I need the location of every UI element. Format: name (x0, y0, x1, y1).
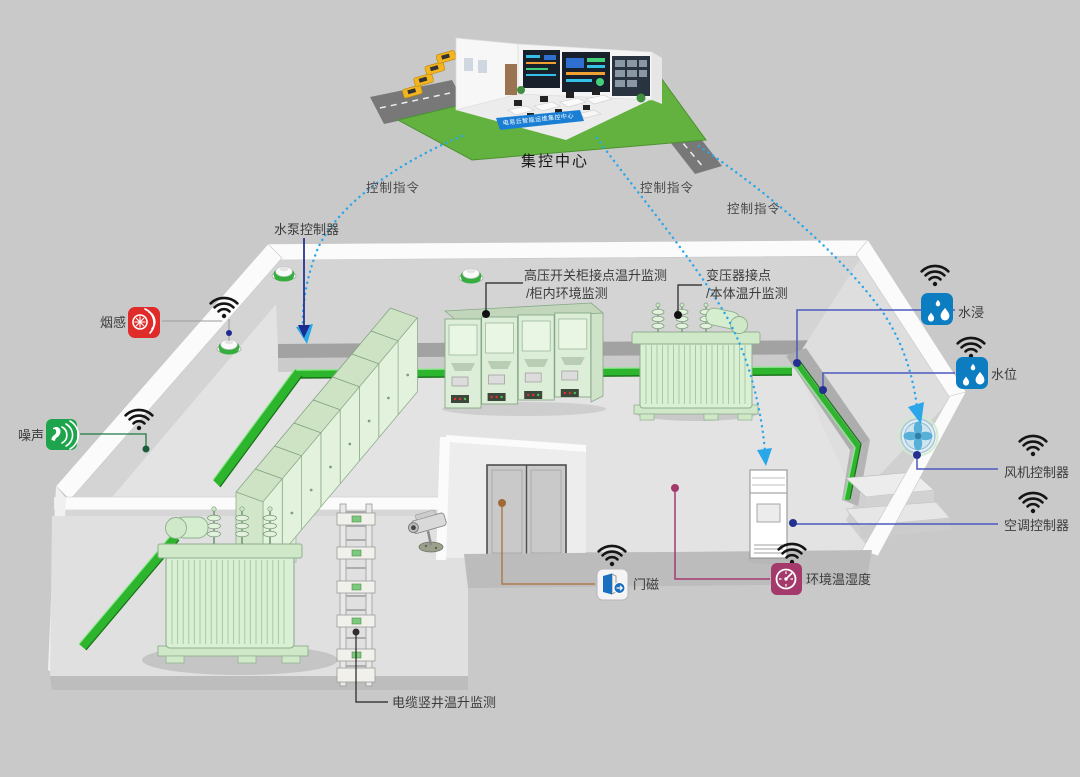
label-door-magnet: 门磁 (633, 577, 659, 592)
cable-clamp (337, 615, 375, 627)
command-label-right: 控制指令 (727, 201, 781, 216)
noise-sensor-icon (46, 419, 78, 450)
label-fan-controller: 风机控制器 (1004, 465, 1069, 480)
cable-clamp (337, 513, 375, 525)
control-room-door (505, 64, 517, 95)
control-center: 电易云智能运维集控中心 集控中心 (370, 38, 722, 174)
command-label-left: 控制指令 (366, 180, 420, 195)
switchgear-cabinet (518, 315, 554, 400)
smoke-sensor-icon (128, 307, 160, 338)
label-cable-shaft: 电缆竖井温升监测 (392, 695, 496, 710)
label-pump-controller: 水泵控制器 (274, 222, 339, 237)
label-transformer-line2: /本体温升监测 (706, 286, 788, 301)
label-water-level: 水位 (991, 367, 1017, 382)
label-flood: 水浸 (958, 305, 984, 320)
command-label-middle: 控制指令 (640, 180, 694, 195)
fan-icon (899, 417, 938, 456)
substation-building (48, 240, 966, 690)
conservator-end (731, 317, 748, 334)
switchgear-cabinet (482, 317, 518, 404)
wifi-icon (1020, 436, 1047, 456)
door-magnet-icon (597, 569, 628, 600)
label-hv-line2: /柜内环境监测 (526, 286, 608, 301)
double-door (487, 465, 566, 558)
label-smoke: 烟感 (100, 315, 126, 330)
plant (517, 86, 525, 94)
cable-clamp (337, 581, 375, 593)
wifi-icon (1020, 493, 1047, 513)
label-noise: 噪声 (18, 428, 44, 443)
switchgear-cabinet (445, 319, 481, 408)
water-drops-icon (956, 357, 988, 389)
conservator-end (166, 518, 187, 539)
control-room-right-wall (652, 52, 662, 104)
lower-room-front-face (50, 676, 468, 690)
substation-monitoring-diagram: 电易云智能运维集控中心 集控中心 (0, 0, 1080, 777)
plant (637, 94, 646, 103)
label-temp-humidity: 环境温湿度 (806, 572, 871, 587)
switchgear-cabinet (555, 313, 591, 397)
water-drops-icon (921, 293, 953, 325)
diagram-canvas: 电易云智能运维集控中心 集控中心 (0, 0, 1080, 777)
air-conditioner-unit (747, 470, 791, 564)
control-center-title: 集控中心 (521, 153, 589, 170)
cable-clamp (337, 547, 375, 559)
wifi-icon (958, 338, 985, 358)
label-hv-line1: 高压开关柜接点温升监测 (524, 268, 667, 283)
label-ac-controller: 空调控制器 (1004, 518, 1069, 533)
label-transformer-line1: 变压器接点 (706, 268, 771, 283)
wifi-icon (922, 266, 949, 286)
gauge-icon (771, 563, 802, 595)
